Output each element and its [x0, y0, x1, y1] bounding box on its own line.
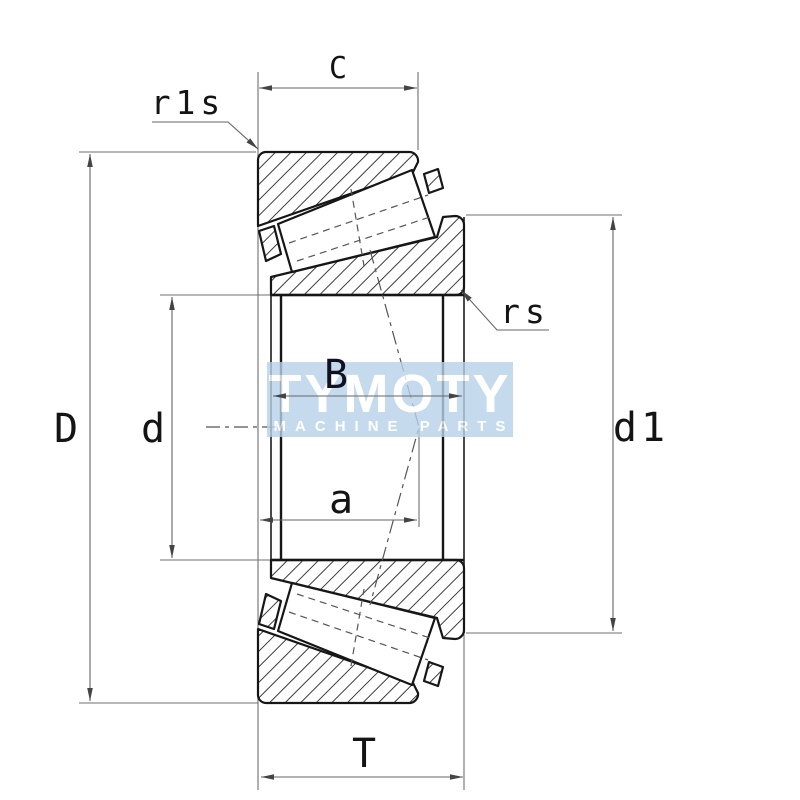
label-B: B: [324, 352, 348, 398]
cage-large-end-top: [424, 169, 443, 193]
top-section: [258, 152, 464, 295]
label-a: a: [329, 477, 353, 523]
label-d1: d1: [613, 405, 669, 451]
bottom-section: [258, 560, 464, 703]
watermark: TYMOTY MACHINE PARTS: [267, 362, 514, 437]
label-C: C: [329, 51, 347, 86]
bearing-drawing-page: C D d d1 a T r1s rs TYMOTY MACHINE PARTS…: [0, 0, 800, 800]
label-d: d: [141, 406, 165, 452]
label-D: D: [54, 406, 78, 452]
cage-small-end-top: [259, 226, 281, 261]
cage-small-end-bottom: [259, 594, 281, 629]
leader-r1s: [152, 122, 258, 149]
bearing-drawing: C D d d1 a T r1s rs TYMOTY MACHINE PARTS…: [0, 0, 800, 800]
watermark-tagline: MACHINE PARTS: [274, 418, 515, 435]
label-T: T: [352, 731, 376, 777]
watermark-brand: TYMOTY: [269, 364, 512, 424]
label-rs: rs: [500, 292, 550, 331]
label-r1s: r1s: [151, 83, 226, 122]
cage-large-end-bottom: [424, 662, 443, 686]
